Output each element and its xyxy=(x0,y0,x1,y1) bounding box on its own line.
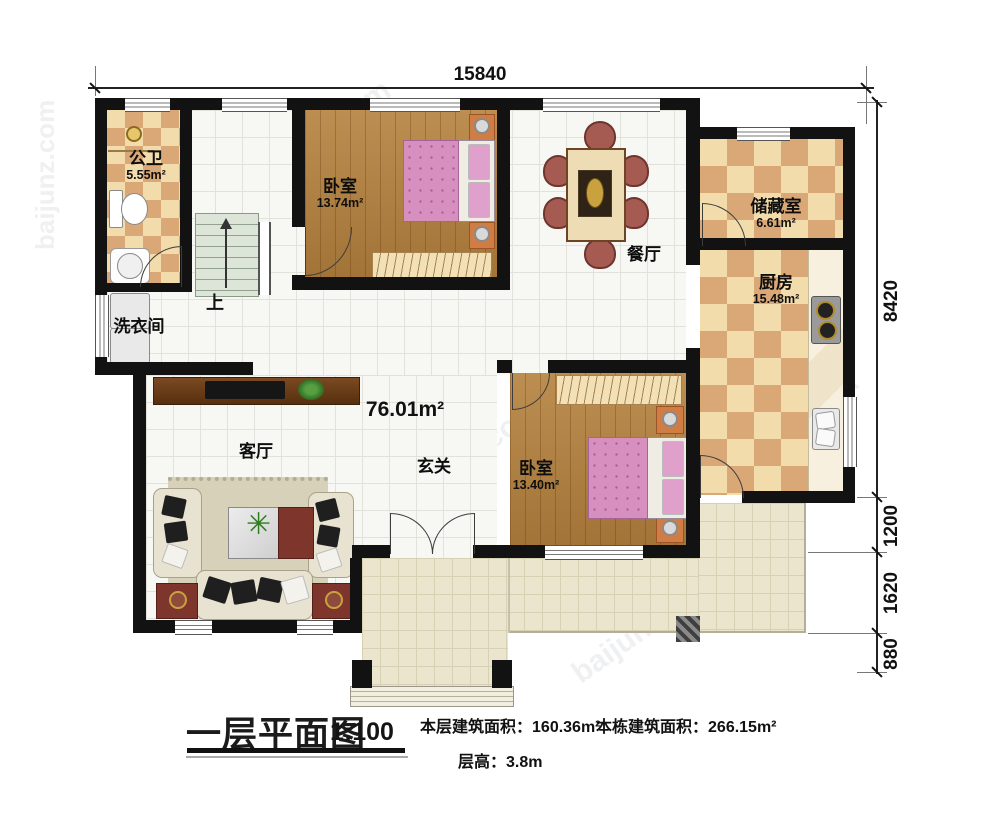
window xyxy=(545,545,643,560)
dimension-right-value: 1200 xyxy=(881,496,903,556)
room-label-bedroom1: 卧室 13.74m² xyxy=(298,178,382,210)
table-plant-icon: ✳ xyxy=(246,510,271,540)
stair-arrowhead-icon xyxy=(220,218,232,229)
bedroom2-pillow xyxy=(662,441,684,477)
dimension-right-value: 1620 xyxy=(881,563,903,623)
side-table-decor-icon xyxy=(169,591,187,609)
entry-porch xyxy=(362,558,508,686)
total-area-value: 266.15m² xyxy=(708,719,777,736)
sofa-cushion xyxy=(316,524,340,547)
window xyxy=(370,98,460,112)
bedroom2-pillow xyxy=(662,479,684,515)
floor-area-text: 本层建筑面积：160.36m² xyxy=(420,713,601,737)
window xyxy=(222,98,287,112)
wall xyxy=(686,348,700,558)
bedroom2-lamp-icon xyxy=(662,520,678,536)
plant-icon xyxy=(298,379,324,400)
bathroom-sink-basin xyxy=(117,253,143,279)
room-label-foyer: 玄关 xyxy=(406,458,462,477)
bedroom2-lamp-icon xyxy=(662,411,678,427)
window xyxy=(737,127,790,141)
extension-line xyxy=(857,102,887,103)
wall xyxy=(95,362,253,375)
window xyxy=(125,98,170,112)
sofa-cushion xyxy=(164,521,189,544)
floor-height-text: 层高：3.8m xyxy=(458,748,542,772)
floor-area-label: 本层建筑面积： xyxy=(420,719,532,736)
window xyxy=(297,620,333,635)
wall xyxy=(497,360,512,373)
dimension-right-value: 8420 xyxy=(881,271,903,331)
wall xyxy=(292,275,305,290)
table-centerpiece-icon xyxy=(586,178,604,208)
wall xyxy=(473,545,510,558)
shower-knob-icon xyxy=(126,126,142,142)
dining-chair xyxy=(584,238,616,269)
bedroom1-lamp-icon xyxy=(474,226,490,242)
porch-edge xyxy=(508,558,510,633)
wall xyxy=(352,545,390,558)
open-area-label: 76.01m² xyxy=(360,398,450,421)
bedroom2-bed xyxy=(588,437,648,519)
room-label-storage: 储藏室 6.61m² xyxy=(736,198,816,230)
wall xyxy=(133,362,146,633)
porch-column xyxy=(352,660,372,688)
title-underline xyxy=(187,748,405,753)
bedroom1-bed xyxy=(403,140,459,222)
bedroom2-wardrobe xyxy=(556,375,682,405)
room-label-bedroom2: 卧室 13.40m² xyxy=(500,460,572,492)
total-area-text: 本栋建筑面积：266.15m² xyxy=(596,713,777,737)
sofa-cushion xyxy=(256,577,284,604)
side-table-decor-icon xyxy=(325,591,343,609)
wall xyxy=(548,360,698,373)
bedroom1-pillow xyxy=(468,144,490,180)
plan-scale: 1:100 xyxy=(330,718,394,747)
stairs-up-label: 上 xyxy=(200,294,230,314)
sofa-cushion xyxy=(161,495,187,519)
bedroom1-lamp-icon xyxy=(474,118,490,134)
room-label-living: 客厅 xyxy=(228,443,284,462)
sofa-cushion xyxy=(230,579,257,605)
title-underline-thin xyxy=(186,756,408,758)
wall xyxy=(350,558,362,633)
room-label-dining: 餐厅 xyxy=(616,246,672,265)
extension-line xyxy=(866,66,867,124)
floor-height-label: 层高： xyxy=(458,754,506,771)
room-label-laundry: 洗衣间 xyxy=(104,318,174,337)
stair-arrow xyxy=(225,226,227,288)
floor-height-value: 3.8m xyxy=(506,754,542,771)
wall xyxy=(742,491,855,503)
window xyxy=(843,397,857,467)
wall xyxy=(686,98,700,265)
terrace-edge xyxy=(804,503,806,631)
kitchen-sink-basin xyxy=(815,428,836,447)
toilet-bowl xyxy=(121,193,148,225)
terrace-edge xyxy=(508,631,806,633)
total-area-label: 本栋建筑面积： xyxy=(596,719,708,736)
floor-plan: baijunz.com baijunz.com baijunz.com baij… xyxy=(0,0,1000,833)
dimension-right-value: 880 xyxy=(881,624,903,684)
wall xyxy=(292,277,510,290)
watermark: baijunz.com xyxy=(30,100,61,250)
tv xyxy=(205,381,285,399)
dimension-line-right xyxy=(876,100,878,674)
stove-burner-icon xyxy=(818,321,837,340)
coffee-table-red xyxy=(278,507,314,559)
stove-burner-icon xyxy=(816,301,835,320)
stair-rail xyxy=(258,222,271,295)
window xyxy=(175,620,212,635)
room-label-bathroom: 公卫 5.55m² xyxy=(108,150,184,182)
extension-line xyxy=(95,66,96,96)
dimension-top-value: 15840 xyxy=(400,64,560,86)
wall xyxy=(497,98,510,290)
porch-steps xyxy=(350,686,514,707)
bedroom1-pillow xyxy=(468,182,490,218)
floor-area-value: 160.36m² xyxy=(532,719,601,736)
room-label-kitchen: 厨房 15.48m² xyxy=(736,274,816,306)
terrace xyxy=(698,503,806,631)
window xyxy=(543,98,660,112)
porch-column xyxy=(492,660,512,688)
terrace-column xyxy=(676,616,700,642)
dimension-line-top xyxy=(88,87,874,89)
